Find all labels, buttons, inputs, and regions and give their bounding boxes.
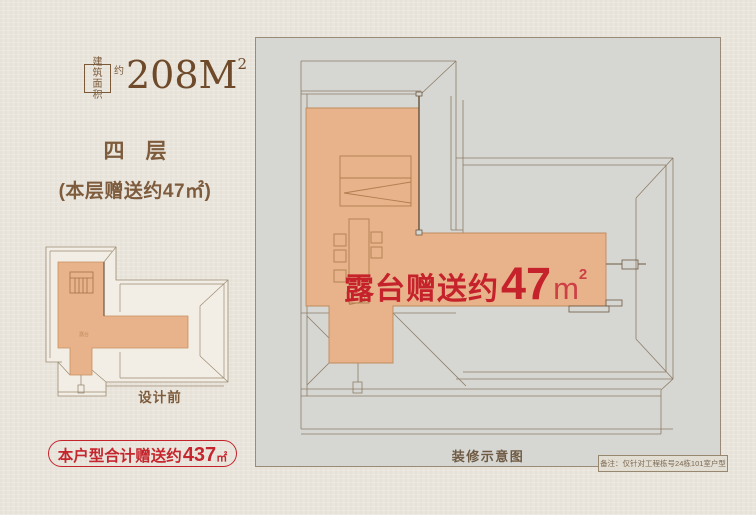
area-box-row2: 面积 bbox=[87, 79, 110, 101]
terrace-gift-value: 47 bbox=[501, 258, 551, 310]
building-area-box: 建筑 面积 bbox=[84, 64, 111, 93]
terrace-gift-label: 露台赠送约 47 m 2 bbox=[344, 258, 587, 310]
terrace-gift-unit: m bbox=[553, 271, 579, 307]
total-gift-badge: 本户型合计赠送约 437 ㎡ bbox=[48, 440, 237, 467]
area-value: 208M bbox=[126, 56, 237, 94]
building-area-badge: 建筑 面积 约 208M 2 bbox=[84, 56, 247, 94]
area-box-row1: 建筑 bbox=[87, 57, 110, 79]
floorplan-poster: { "area_badge": { "box_row1": "建筑", "box… bbox=[0, 0, 756, 515]
terrace-gift-prefix: 露台赠送约 bbox=[344, 264, 499, 308]
total-gift-prefix: 本户型合计赠送约 bbox=[58, 444, 182, 466]
design-before-label: 设计前 bbox=[100, 386, 220, 406]
area-value-sup: 2 bbox=[237, 55, 247, 73]
total-gift-unit: ㎡ bbox=[216, 449, 227, 465]
chimney-icon bbox=[353, 382, 362, 393]
terrace-gift-sup: 2 bbox=[579, 266, 587, 283]
floor-title: 四 层 bbox=[40, 135, 230, 165]
main-plan-panel: 露台赠送约 47 m 2 装修示意图 bbox=[255, 37, 721, 467]
floor-plan-svg bbox=[256, 38, 719, 465]
area-approx-label: 约 bbox=[114, 62, 124, 77]
total-gift-value: 437 bbox=[183, 444, 216, 467]
floor-gift-note: (本层赠送约47㎡) bbox=[21, 176, 249, 203]
note-box: 备注：仅针对工程栋号24栋101室户型 bbox=[598, 455, 728, 472]
thumb-terrace-tiny-label: 露台 bbox=[79, 331, 89, 338]
